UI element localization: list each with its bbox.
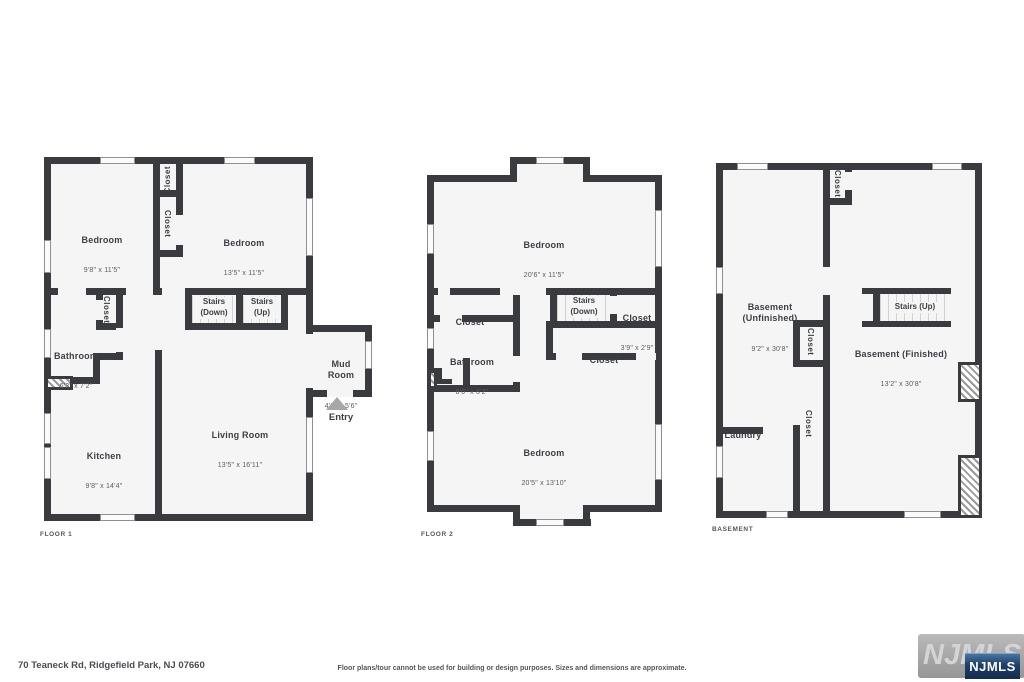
window bbox=[306, 198, 313, 256]
room-dims: 9'2" x 30'8" bbox=[743, 346, 798, 355]
room-dims: 13'5" x 16'11" bbox=[212, 462, 269, 471]
room-dims: 3'9" x 2'9" bbox=[621, 345, 654, 354]
room-name: Bathroom bbox=[54, 351, 98, 362]
wall bbox=[550, 321, 617, 328]
closet-label: Closet bbox=[163, 166, 172, 193]
room-name: Bathroom bbox=[450, 357, 494, 368]
closet-label: Closet bbox=[804, 410, 813, 437]
room-dims: 6'3" x 7'2" bbox=[54, 383, 98, 392]
wall bbox=[510, 157, 517, 182]
wall bbox=[155, 350, 162, 521]
wall bbox=[153, 157, 160, 295]
room-name: Bedroom bbox=[224, 238, 265, 249]
room-label-basement-finished: Basement (Finished) 13'2" x 30'8" bbox=[855, 329, 947, 410]
wall bbox=[427, 175, 517, 182]
room-label-basement-unfinished: Basement (Unfinished) 9'2" x 30'8" bbox=[743, 282, 798, 374]
room-dims: 20'6" x 11'5" bbox=[524, 272, 565, 281]
closet-label: Closet bbox=[163, 210, 172, 237]
room-name: Living Room bbox=[212, 430, 269, 441]
room-name: Basement (Finished) bbox=[855, 349, 947, 360]
stairs-up-label: Stairs (Up) bbox=[892, 302, 938, 313]
stairs-up-label: Stairs (Up) bbox=[248, 297, 276, 319]
room-dims: 8'0" x 6'2" bbox=[450, 389, 494, 398]
window bbox=[427, 328, 434, 349]
room-label-bedroom-1: Bedroom 9'8" x 11'5" bbox=[82, 215, 123, 296]
wall bbox=[873, 288, 880, 327]
door-opening bbox=[823, 267, 830, 295]
room-label-bedroom-2: Bedroom 13'5" x 11'5" bbox=[224, 218, 265, 299]
plan-title-floor1: FLOOR 1 bbox=[40, 531, 72, 538]
room-label-closet-center: Closet bbox=[590, 335, 619, 386]
door-opening bbox=[306, 334, 313, 388]
wall bbox=[153, 250, 183, 257]
door-opening bbox=[116, 328, 123, 352]
window bbox=[536, 157, 564, 164]
plan-title-basement: BASEMENT bbox=[712, 526, 753, 533]
room-name: Closet bbox=[590, 355, 619, 366]
room-label-bedroom-top: Bedroom 20'6" x 11'5" bbox=[524, 220, 565, 301]
room-dims: 13'2" x 30'8" bbox=[855, 381, 947, 390]
room-label-kitchen: Kitchen 9'8" x 14'4" bbox=[86, 431, 123, 512]
window bbox=[655, 424, 662, 480]
closet-label: Closet bbox=[833, 170, 842, 197]
window bbox=[427, 224, 434, 254]
room-label-laundry: Laundry bbox=[725, 410, 762, 461]
stairs-down-label: Stairs (Down) bbox=[197, 297, 230, 319]
room-name: Kitchen bbox=[86, 451, 123, 462]
hatched-area bbox=[958, 362, 982, 402]
door-opening bbox=[845, 172, 852, 190]
window bbox=[365, 341, 372, 369]
room-name: Mud Room bbox=[325, 359, 358, 382]
wall bbox=[828, 198, 852, 205]
door-opening bbox=[176, 215, 183, 245]
door-opening bbox=[438, 288, 450, 295]
wall bbox=[583, 175, 662, 182]
window bbox=[932, 163, 962, 170]
disclaimer-text: Floor plans/tour cannot be used for buil… bbox=[338, 665, 687, 672]
room-name: Bedroom bbox=[82, 235, 123, 246]
wall bbox=[716, 511, 982, 518]
room-dims: 9'8" x 11'5" bbox=[82, 267, 123, 276]
room-name: Closet bbox=[621, 313, 654, 324]
window bbox=[427, 431, 434, 461]
closet-label: Closet bbox=[102, 296, 111, 323]
entry-arrow-icon bbox=[326, 397, 348, 410]
window bbox=[536, 519, 564, 526]
door-opening bbox=[162, 288, 185, 295]
entry-label: Entry bbox=[329, 412, 353, 423]
room-name: Bedroom bbox=[521, 448, 566, 459]
window bbox=[44, 329, 51, 358]
wall bbox=[793, 360, 830, 367]
room-label-bathroom: Bathroom 8'0" x 6'2" bbox=[450, 337, 494, 418]
window bbox=[100, 157, 135, 164]
wall bbox=[306, 325, 372, 332]
wall bbox=[427, 505, 520, 512]
room-dims: 9'8" x 14'4" bbox=[86, 483, 123, 492]
room-name: Basement (Unfinished) bbox=[743, 302, 798, 325]
room-label-bathroom: Bathroom 6'3" x 7'2" bbox=[54, 331, 98, 412]
room-label-bedroom-bottom: Bedroom 20'5" x 13'10" bbox=[521, 428, 566, 509]
window bbox=[655, 210, 662, 267]
wall bbox=[793, 425, 800, 518]
room-dims: 20'5" x 13'10" bbox=[521, 480, 566, 489]
window bbox=[44, 447, 51, 479]
door-opening bbox=[513, 356, 520, 382]
room-name: Closet bbox=[456, 317, 485, 328]
wall bbox=[44, 514, 313, 521]
window bbox=[100, 514, 135, 521]
room-label-closet-right: Closet 3'9" x 2'9" bbox=[621, 293, 654, 374]
wall bbox=[583, 505, 662, 512]
njmls-logo: NJMLS bbox=[965, 653, 1020, 679]
door-opening bbox=[610, 296, 617, 314]
room-dims: 13'5" x 11'5" bbox=[224, 270, 265, 279]
room-name: Bedroom bbox=[524, 240, 565, 251]
hatched-area bbox=[428, 370, 437, 389]
window bbox=[766, 511, 788, 518]
property-address: 70 Teaneck Rd, Ridgefield Park, NJ 07660 bbox=[18, 660, 205, 671]
stairs-down-label: Stairs (Down) bbox=[567, 296, 600, 318]
door-opening bbox=[556, 353, 582, 360]
window bbox=[737, 163, 768, 170]
window bbox=[904, 511, 941, 518]
window bbox=[716, 267, 723, 294]
wall bbox=[823, 163, 830, 511]
door-opening bbox=[126, 288, 153, 295]
closet-label: Closet bbox=[806, 328, 815, 355]
window bbox=[44, 240, 51, 273]
window bbox=[224, 157, 255, 164]
hatched-area bbox=[958, 455, 982, 518]
room-label-living-room: Living Room 13'5" x 16'11" bbox=[212, 410, 269, 491]
window bbox=[44, 413, 51, 444]
room-name: Laundry bbox=[725, 430, 762, 441]
plan-title-floor2: FLOOR 2 bbox=[421, 531, 453, 538]
window bbox=[716, 446, 723, 478]
wall bbox=[185, 323, 288, 330]
window bbox=[306, 417, 313, 473]
